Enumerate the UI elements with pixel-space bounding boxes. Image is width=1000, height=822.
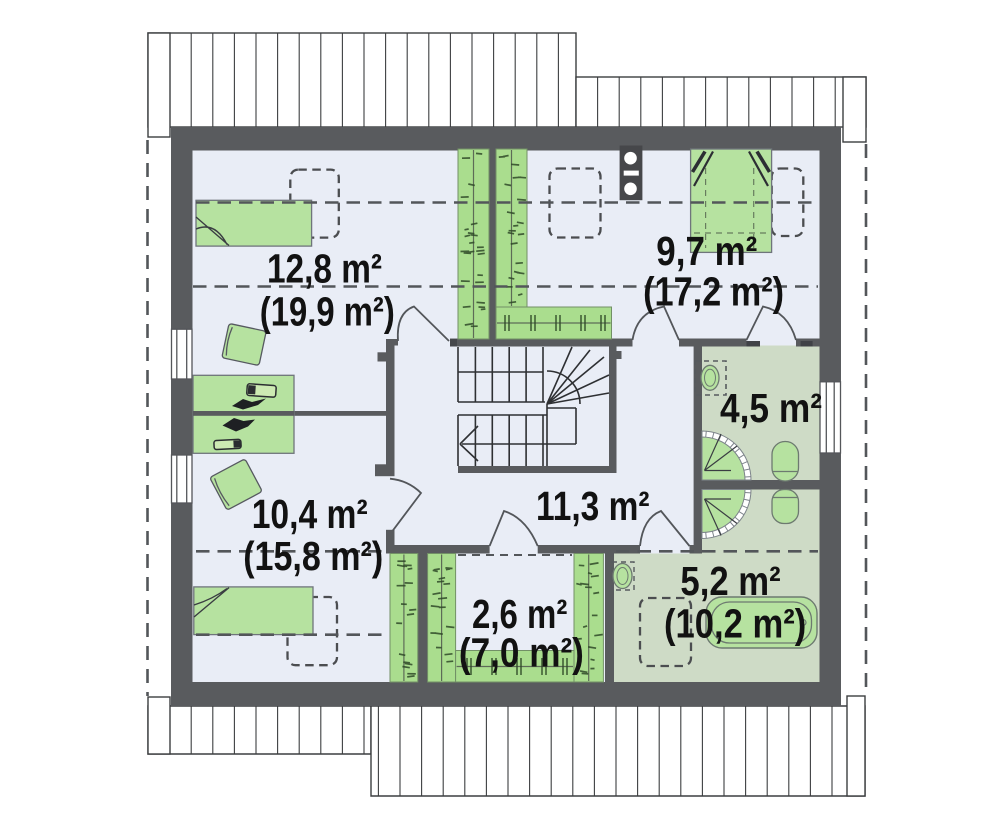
svg-text:11,3 m²: 11,3 m² bbox=[536, 483, 650, 529]
svg-text:10,4 m²: 10,4 m² bbox=[252, 491, 368, 537]
svg-text:5,2 m²: 5,2 m² bbox=[680, 558, 780, 604]
svg-text:(10,2 m²): (10,2 m²) bbox=[664, 601, 806, 647]
svg-text:(19,9 m²): (19,9 m²) bbox=[260, 289, 395, 335]
svg-text:9,7 m²: 9,7 m² bbox=[656, 228, 757, 274]
svg-text:12,8 m²: 12,8 m² bbox=[267, 246, 382, 292]
svg-text:4,5 m²: 4,5 m² bbox=[720, 385, 822, 431]
svg-text:(7,0 m²): (7,0 m²) bbox=[459, 630, 584, 676]
svg-text:(15,8 m²): (15,8 m²) bbox=[243, 533, 383, 579]
svg-text:(17,2 m²): (17,2 m²) bbox=[643, 269, 784, 315]
